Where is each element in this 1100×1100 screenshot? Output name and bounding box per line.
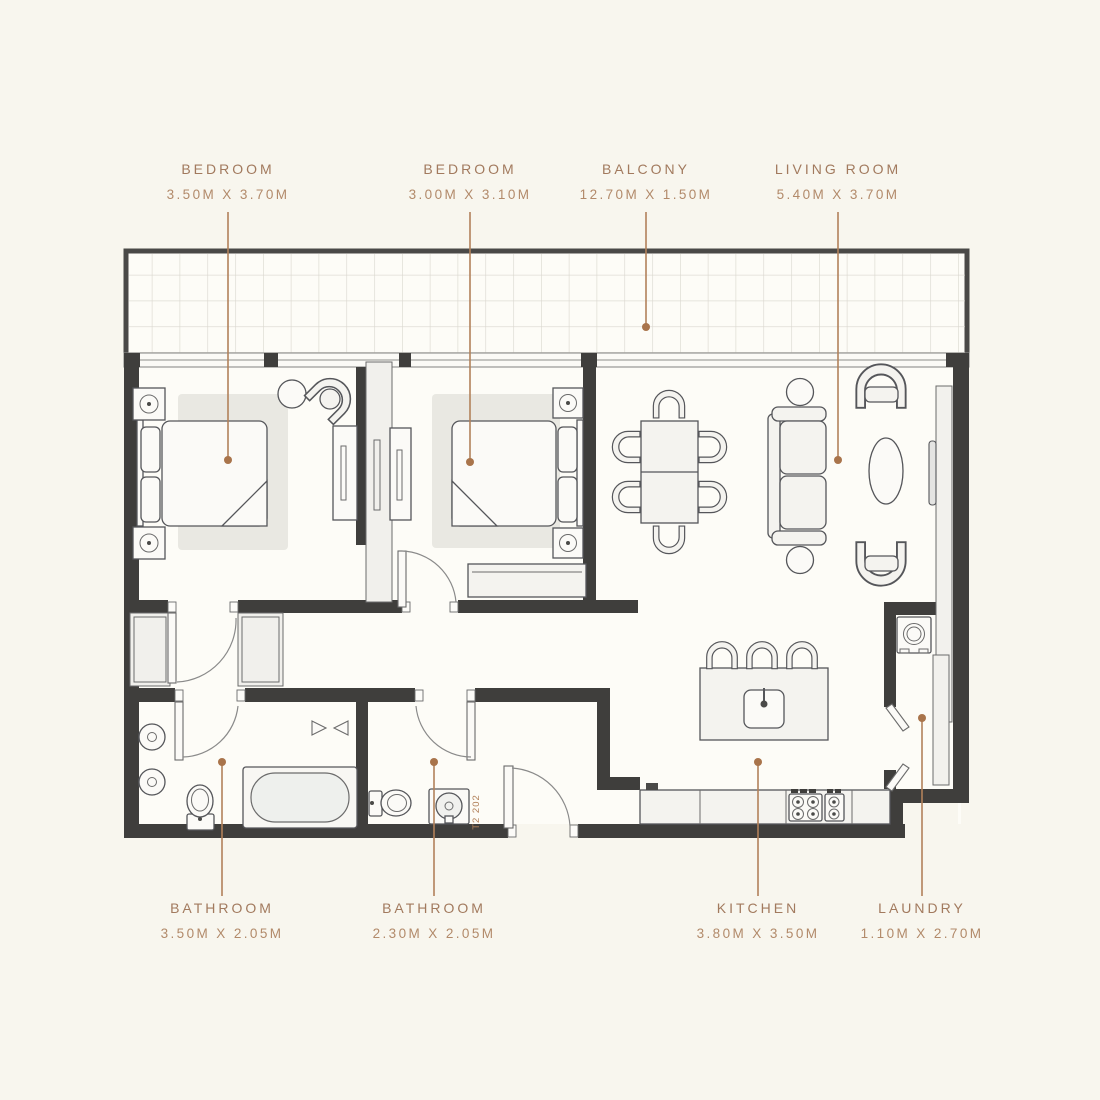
nightstand <box>553 388 583 418</box>
room-dims: 5.40M X 3.70M <box>723 187 953 202</box>
window-mullion <box>264 353 278 367</box>
nightstand <box>133 527 165 559</box>
dining-table <box>641 421 698 523</box>
floor-plan-page: T2 202 BEDROOM 3.50M X 3.70M BEDROOM 3.0… <box>0 0 1100 1100</box>
room-name: LIVING ROOM <box>723 161 953 177</box>
nightstand <box>133 388 165 420</box>
stove <box>789 789 844 821</box>
room-label-bedroom-1: BEDROOM 3.50M X 3.70M <box>113 161 343 202</box>
balcony <box>126 251 967 355</box>
wardrobe <box>390 428 411 520</box>
toilet <box>187 785 214 830</box>
bathtub <box>243 767 357 828</box>
room-label-bathroom-1: BATHROOM 3.50M X 2.05M <box>107 900 337 941</box>
side-table <box>787 379 814 406</box>
laundry-counter <box>933 655 949 785</box>
room-label-laundry: LAUNDRY 1.10M X 2.70M <box>807 900 1037 941</box>
coffee-table <box>869 438 903 504</box>
room-label-bathroom-2: BATHROOM 2.30M X 2.05M <box>319 900 549 941</box>
toilet <box>369 790 411 816</box>
wardrobe <box>333 426 357 520</box>
room-dims: 1.10M X 2.70M <box>807 926 1037 941</box>
dresser <box>468 564 586 597</box>
room-name: BATHROOM <box>319 900 549 916</box>
window-mullion <box>581 353 597 367</box>
balcony-window-band <box>124 353 969 367</box>
side-table <box>278 380 306 408</box>
room-dims: 3.50M X 3.70M <box>113 187 343 202</box>
nightstand <box>553 528 583 558</box>
balcony-tile-grid <box>129 254 965 353</box>
sink <box>139 769 165 795</box>
room-label-living-room: LIVING ROOM 5.40M X 3.70M <box>723 161 953 202</box>
window-mullion <box>399 353 411 367</box>
closet-column <box>366 362 392 602</box>
vanity-sink <box>429 789 469 824</box>
sink <box>139 724 165 750</box>
side-table <box>787 547 814 574</box>
exterior-notch <box>903 803 958 825</box>
tv <box>929 441 936 505</box>
room-dims: 2.30M X 2.05M <box>319 926 549 941</box>
sofa <box>768 407 826 545</box>
unit-number: T2 202 <box>471 794 482 830</box>
washing-machine <box>897 617 931 653</box>
counter-tap <box>646 783 658 790</box>
room-name: LAUNDRY <box>807 900 1037 916</box>
room-name: BEDROOM <box>113 161 343 177</box>
kitchen-island <box>700 668 828 740</box>
room-dims: 3.50M X 2.05M <box>107 926 337 941</box>
room-name: BATHROOM <box>107 900 337 916</box>
